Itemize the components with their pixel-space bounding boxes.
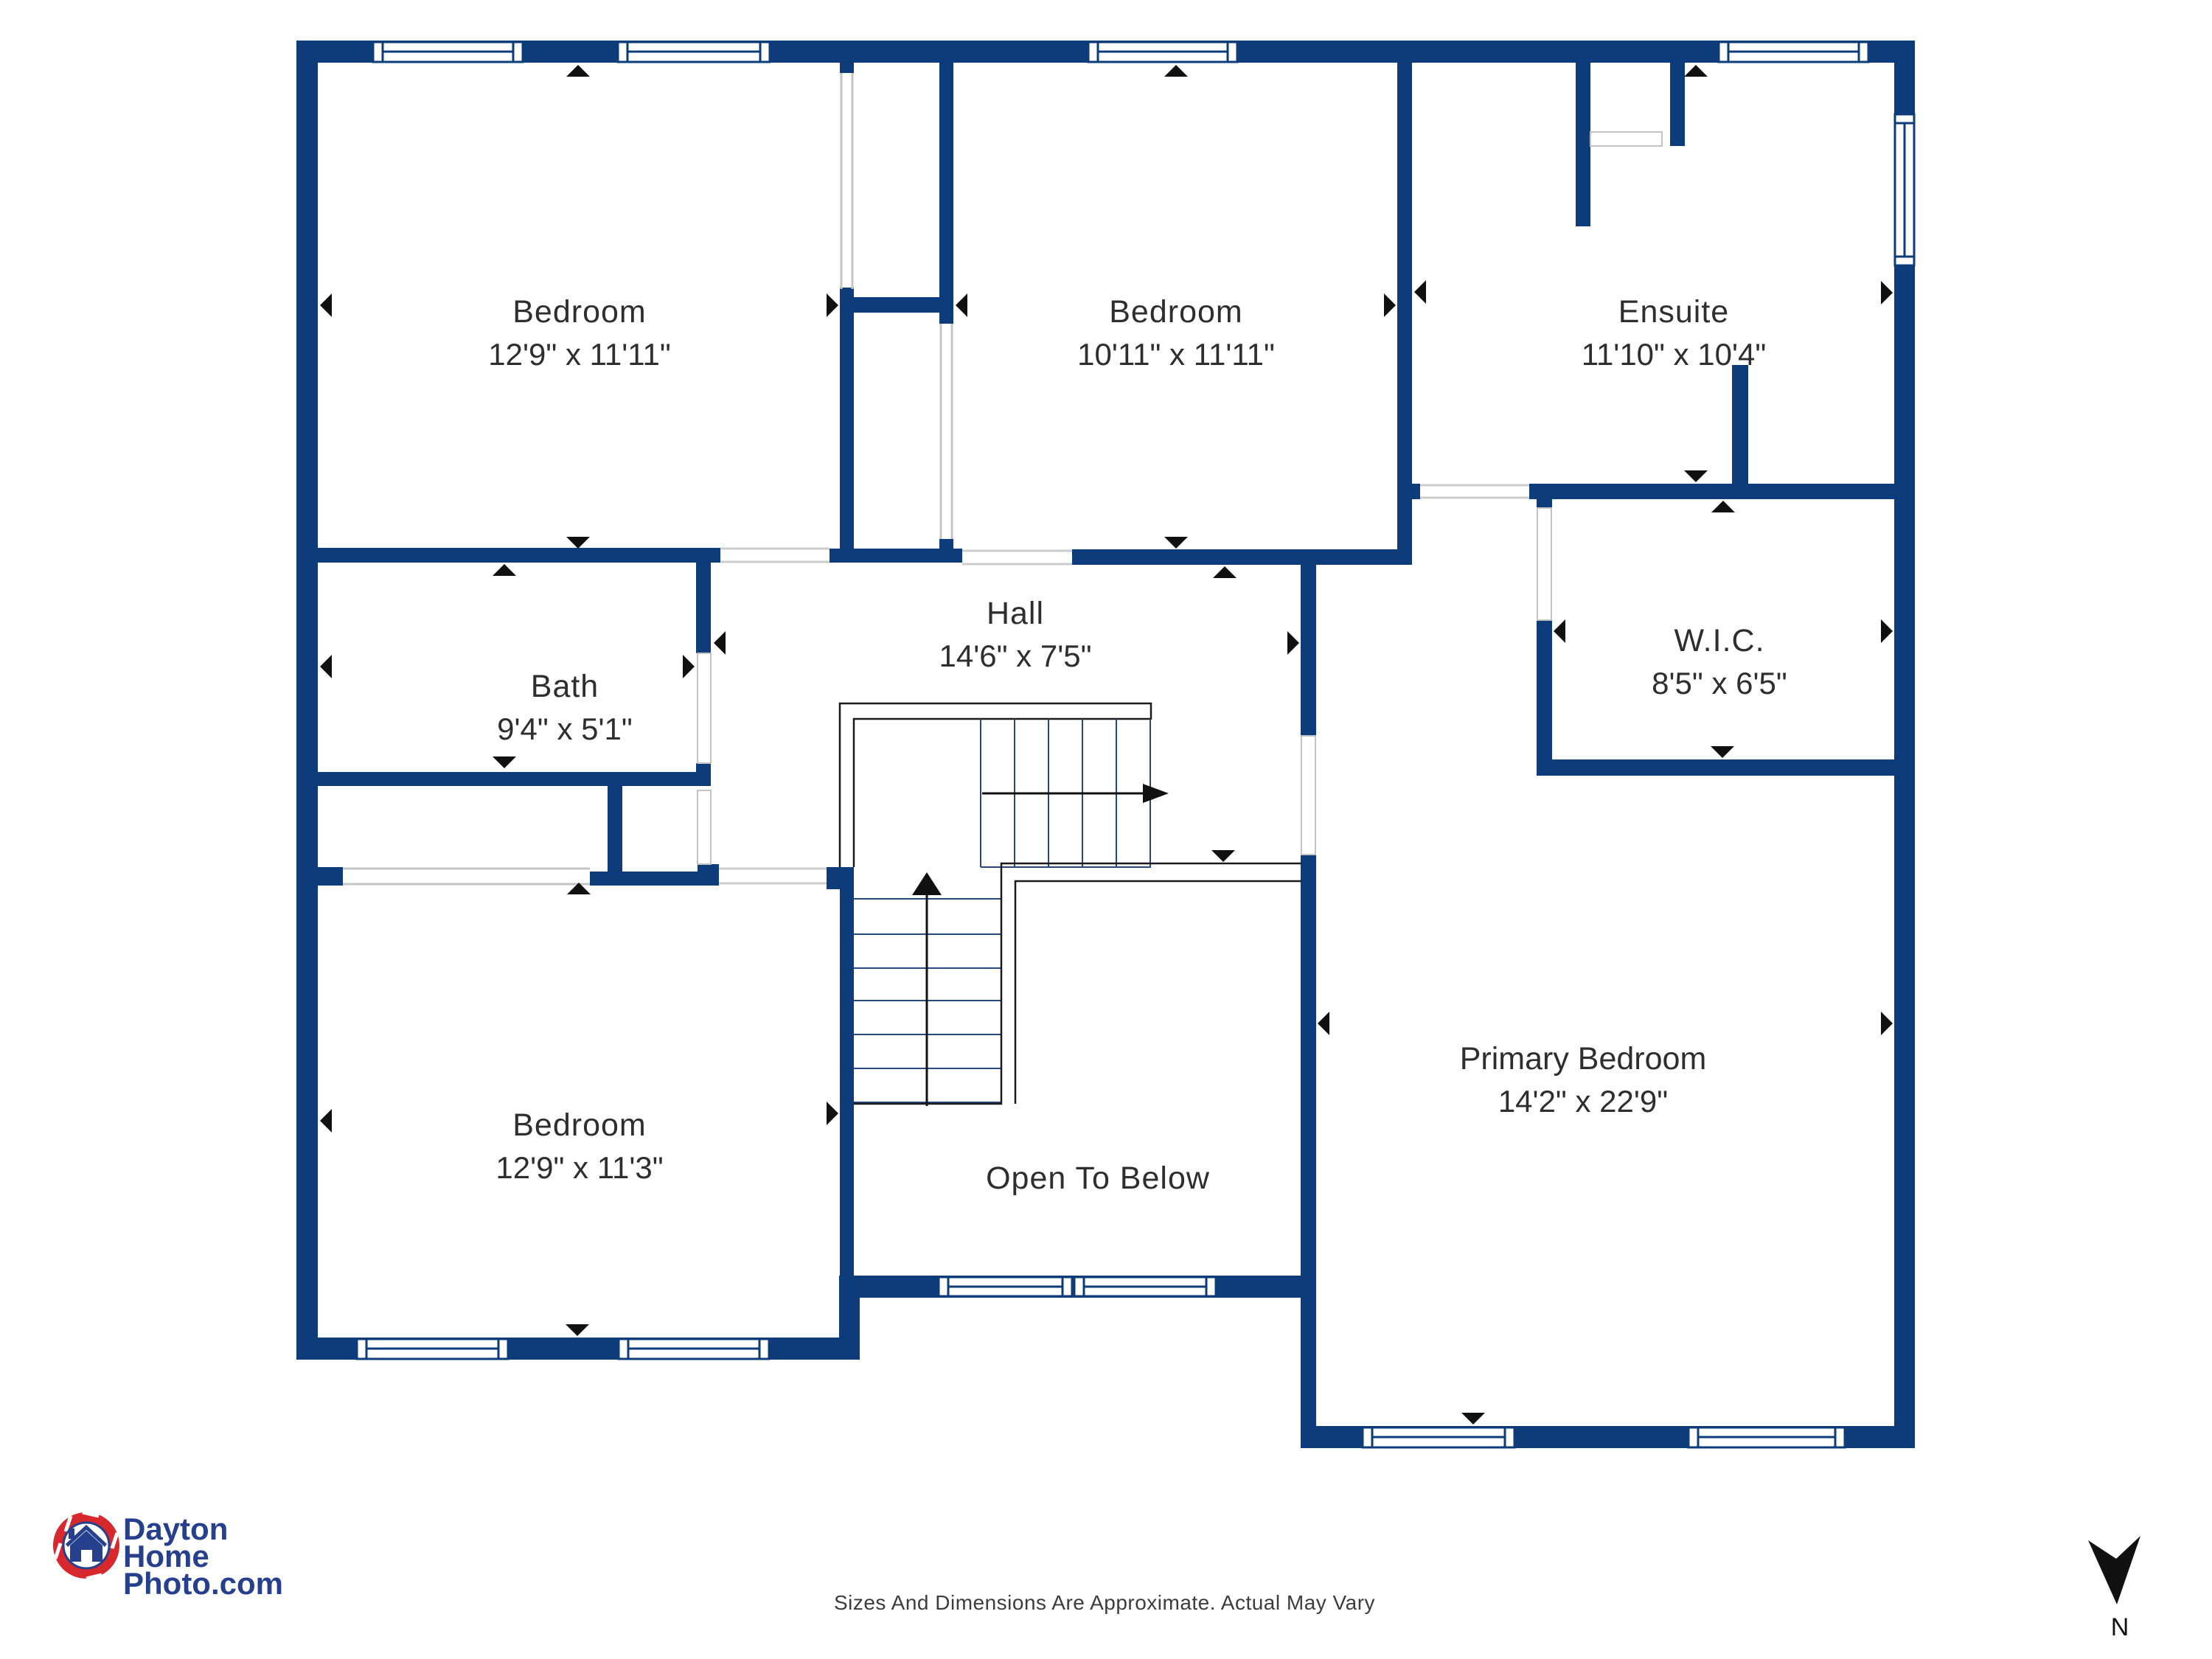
svg-text:Bedroom: Bedroom	[512, 1107, 646, 1143]
svg-text:10'11" x 11'11": 10'11" x 11'11"	[1077, 337, 1275, 372]
svg-text:Hall: Hall	[987, 596, 1044, 631]
svg-text:Ensuite: Ensuite	[1618, 294, 1729, 330]
svg-text:N: N	[2111, 1613, 2129, 1641]
svg-text:12'9" x 11'3": 12'9" x 11'3"	[495, 1150, 663, 1185]
svg-text:11'10" x 10'4": 11'10" x 10'4"	[1582, 337, 1767, 372]
svg-text:Bedroom: Bedroom	[512, 294, 646, 330]
svg-text:Sizes And Dimensions Are Appro: Sizes And Dimensions Are Approximate. Ac…	[834, 1591, 1375, 1614]
svg-text:Bedroom: Bedroom	[1109, 294, 1242, 330]
svg-text:Primary Bedroom: Primary Bedroom	[1460, 1041, 1707, 1077]
svg-text:Bath: Bath	[531, 669, 599, 704]
svg-text:12'9" x 11'11": 12'9" x 11'11"	[488, 337, 670, 372]
svg-text:Open To Below: Open To Below	[986, 1161, 1210, 1196]
svg-text:W.I.C.: W.I.C.	[1674, 623, 1764, 658]
svg-text:Photo.com: Photo.com	[123, 1566, 283, 1601]
svg-text:9'4" x 5'1": 9'4" x 5'1"	[497, 712, 633, 746]
svg-text:8'5" x 6'5": 8'5" x 6'5"	[1652, 666, 1787, 700]
svg-text:14'6" x 7'5": 14'6" x 7'5"	[939, 639, 1092, 673]
svg-text:14'2" x 22'9": 14'2" x 22'9"	[1498, 1084, 1668, 1119]
